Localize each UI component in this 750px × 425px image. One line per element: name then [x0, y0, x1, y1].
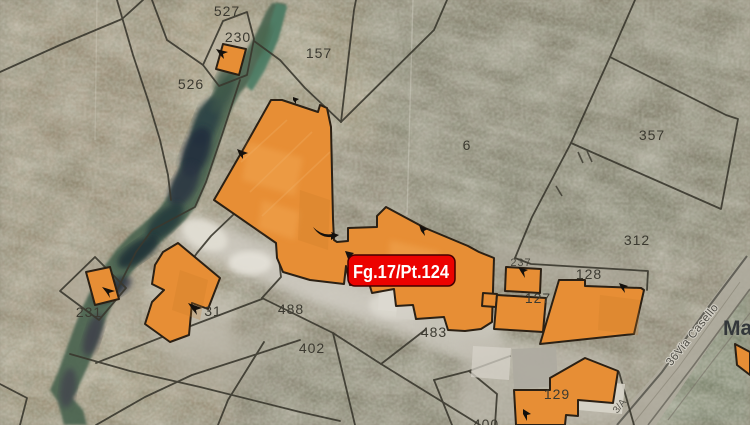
svg-text:230: 230: [225, 29, 251, 45]
svg-text:129: 129: [544, 386, 570, 402]
svg-text:Fg.17/Pt.124: Fg.17/Pt.124: [353, 262, 449, 282]
svg-text:488: 488: [278, 301, 304, 317]
svg-text:237: 237: [510, 257, 531, 269]
svg-text:526: 526: [178, 76, 204, 92]
svg-text:128: 128: [576, 266, 602, 282]
svg-text:127: 127: [525, 290, 551, 306]
svg-text:31: 31: [204, 303, 222, 319]
svg-text:527: 527: [214, 3, 240, 19]
svg-text:312: 312: [624, 232, 650, 248]
svg-text:157: 157: [306, 45, 332, 61]
svg-text:483: 483: [421, 324, 447, 340]
svg-text:400: 400: [473, 416, 499, 425]
svg-text:402: 402: [299, 340, 325, 356]
svg-text:Ma: Ma: [723, 317, 750, 340]
svg-text:231: 231: [76, 304, 102, 320]
svg-text:6: 6: [463, 137, 472, 153]
svg-text:357: 357: [639, 127, 665, 143]
